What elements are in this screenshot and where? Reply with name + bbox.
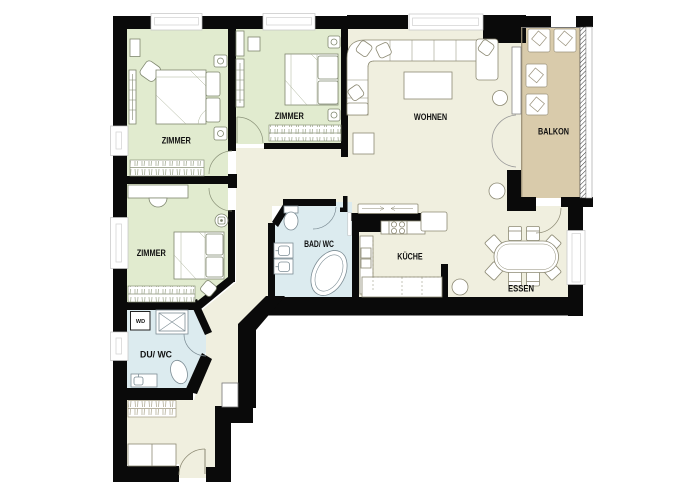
svg-text:BAD/ WC: BAD/ WC <box>304 238 334 250</box>
svg-text:ZIMMER: ZIMMER <box>137 247 166 258</box>
svg-text:BALKON: BALKON <box>538 125 569 136</box>
svg-text:ZIMMER: ZIMMER <box>275 110 304 121</box>
svg-text:ESSEN: ESSEN <box>508 283 534 294</box>
svg-text:KÜCHE: KÜCHE <box>397 250 423 261</box>
svg-text:WOHNEN: WOHNEN <box>414 111 447 122</box>
svg-text:DU/ WC: DU/ WC <box>140 349 172 359</box>
svg-text:ZIMMER: ZIMMER <box>162 135 191 146</box>
svg-text:WD: WD <box>136 319 145 325</box>
